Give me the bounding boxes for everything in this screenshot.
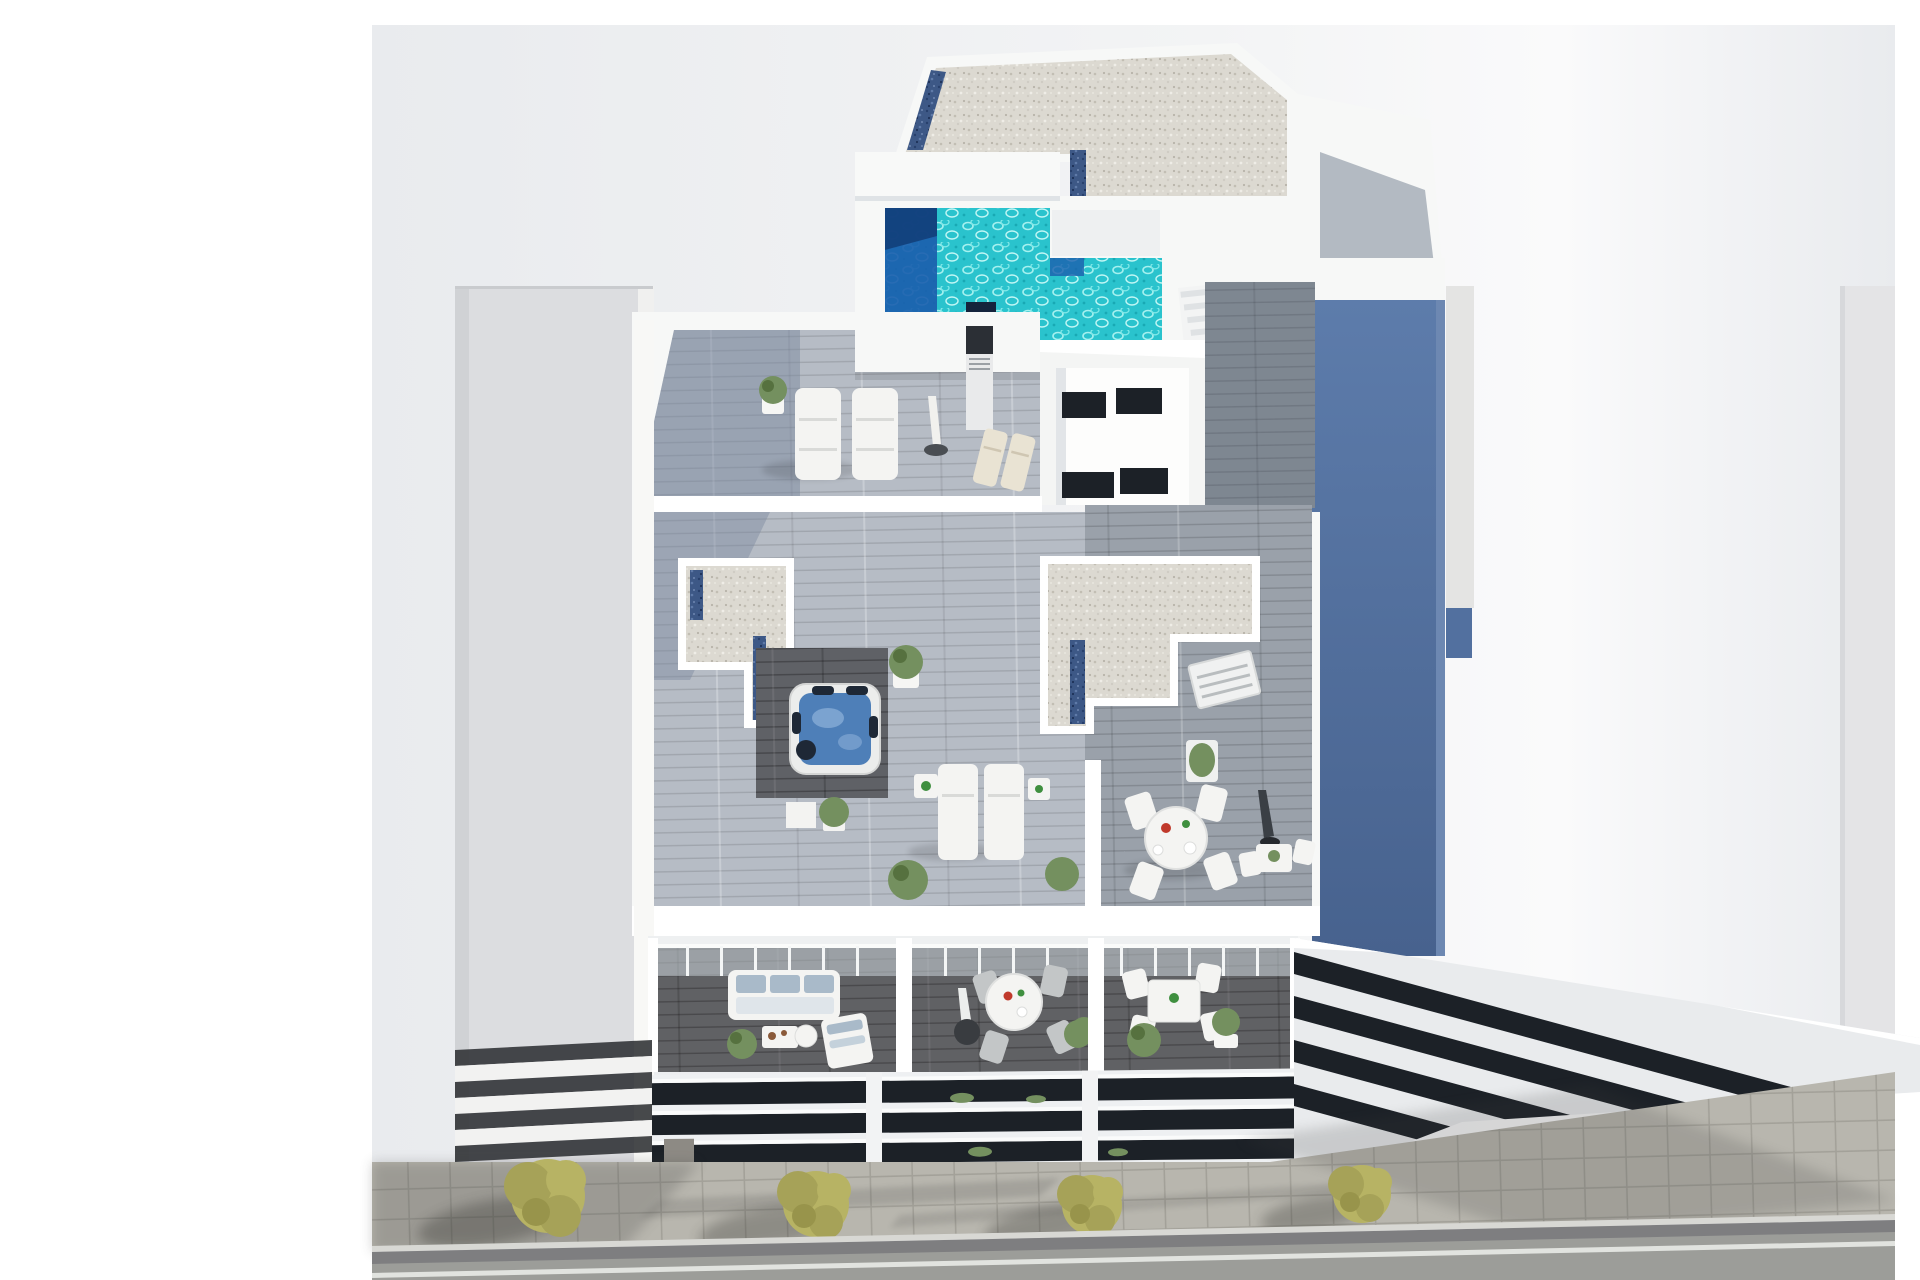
outdoor-shower-column — [966, 326, 993, 430]
sun-lounger — [852, 388, 898, 480]
tree-foliage — [817, 1173, 851, 1207]
table-item — [781, 1030, 787, 1036]
round-dining-table — [1145, 807, 1207, 869]
hot-tub-headrest — [792, 712, 801, 734]
balcony-divider-wall — [896, 938, 912, 1072]
sun-lounger — [938, 764, 978, 860]
plant-foliage-dark — [762, 380, 774, 392]
plant-foliage — [819, 797, 849, 827]
table-item — [768, 1032, 776, 1040]
back-roof-parapet — [1298, 258, 1445, 304]
lightwell-window — [1120, 468, 1168, 494]
tree-foliage — [546, 1160, 586, 1200]
neighbor-left-edge-dark — [455, 286, 469, 1162]
cushion-seam — [799, 418, 837, 421]
table-plate — [1184, 842, 1196, 854]
tree-foliage-dark — [1340, 1192, 1360, 1212]
potted-plant — [1212, 1008, 1240, 1048]
neighbor-right-wall-arm — [1446, 608, 1472, 658]
sofa-cushion — [804, 975, 834, 993]
plant-foliage — [727, 1029, 757, 1059]
back-roof-wedge — [1298, 94, 1445, 304]
upper-right-deck-shade — [1205, 282, 1315, 508]
lightwell-window — [1116, 388, 1162, 414]
hot-tub-area — [756, 648, 888, 798]
plant-foliage — [1127, 1023, 1161, 1057]
neighbor-right-wall-edge — [1436, 300, 1445, 956]
plant-foliage — [1045, 857, 1079, 891]
cushion-seam — [856, 448, 894, 451]
sofa-cushion — [736, 975, 766, 993]
lower-facade — [652, 1068, 1298, 1175]
hot-tub-cover-corner — [796, 740, 816, 760]
round-dining-table — [986, 974, 1042, 1030]
tray-table — [795, 1025, 817, 1047]
balustrade-rail — [652, 944, 1298, 948]
skylight-strip — [690, 570, 703, 620]
table-plate — [1017, 1007, 1027, 1017]
plant-foliage — [889, 645, 923, 679]
facade-mullion — [866, 1073, 882, 1173]
parapet-shadow-line — [855, 196, 1060, 201]
plant-foliage — [759, 376, 787, 404]
cushion-seam — [942, 794, 974, 797]
main-terrace-parapet — [632, 906, 1320, 936]
lightwell-window — [1062, 472, 1114, 498]
hot-tub-headrest — [869, 716, 878, 738]
table-plant — [1268, 850, 1280, 862]
skylight-strip — [1070, 640, 1085, 724]
parasol-base — [954, 1019, 980, 1045]
plant-foliage-dark — [893, 649, 907, 663]
table-item-green — [1182, 820, 1190, 828]
vent-slat — [969, 363, 990, 365]
far-right-face — [1840, 286, 1895, 1096]
vent-slat — [969, 358, 990, 360]
chair — [1238, 850, 1262, 877]
far-right-edge — [1840, 286, 1845, 1096]
roof-terrace-main — [632, 505, 1320, 936]
neighbor-right-lit-sliver — [1446, 286, 1474, 608]
plant-foliage — [1189, 743, 1215, 777]
hot-tub-ripple — [838, 734, 862, 750]
neighbor-right-shadow-wall — [1312, 300, 1445, 956]
cushion-seam — [856, 418, 894, 421]
table-item-red — [1004, 992, 1013, 1001]
tree-foliage — [1093, 1177, 1123, 1207]
plant-foliage-dark — [893, 865, 909, 881]
plant-foliage-dark — [730, 1032, 742, 1044]
table-item-green — [1018, 990, 1025, 997]
coffee-table — [762, 1026, 798, 1048]
plant-foliage — [1212, 1008, 1240, 1036]
neighbor-left-face — [455, 286, 653, 1162]
architectural-render: Aerial 3D architectural render of a new-… — [0, 0, 1920, 1280]
plant-foliage-dark — [1131, 1026, 1145, 1040]
table-plant — [1035, 785, 1043, 793]
balcony-level — [648, 936, 1300, 1072]
neighbor-left-roofline — [455, 286, 653, 289]
cushion-seam — [799, 448, 837, 451]
table-item-red — [1161, 823, 1171, 833]
sofa-cushion — [770, 975, 800, 993]
pool-peninsula — [1052, 210, 1160, 256]
parasol-base — [924, 444, 948, 456]
shower-head — [966, 326, 993, 354]
facade-mullion — [1082, 1071, 1098, 1171]
pool-deep-corner — [1050, 258, 1084, 276]
stair-lightwell — [1040, 340, 1205, 505]
tree-foliage-dark — [1070, 1204, 1090, 1224]
vent-slat — [969, 368, 990, 370]
hot-tub-headrest — [846, 686, 868, 695]
tree-foliage-dark — [522, 1198, 550, 1226]
tree-foliage — [1356, 1194, 1384, 1222]
cushion-seam — [988, 794, 1020, 797]
hot-tub-headrest — [812, 686, 834, 695]
plant-foliage — [888, 860, 928, 900]
table-plate — [1153, 845, 1163, 855]
planter-box — [786, 802, 816, 828]
render-canvas: Aerial 3D architectural render of a new-… — [0, 0, 1920, 1280]
lightwell-window — [1062, 392, 1106, 418]
neighbor-left-lower-louvers — [455, 1040, 652, 1162]
sun-lounger — [984, 764, 1024, 860]
sofa-seat — [736, 997, 834, 1014]
far-right-building — [1840, 286, 1895, 1096]
balcony-divider-wall — [1088, 938, 1104, 1072]
table-plant — [921, 781, 931, 791]
potted-plant — [889, 645, 923, 688]
tree-foliage — [1364, 1168, 1392, 1196]
hot-tub-ripple — [812, 708, 844, 728]
roof-terrace-upper — [632, 312, 1042, 517]
tall-planter — [1186, 740, 1218, 782]
upper-terrace-parapet — [636, 496, 1042, 514]
table-plant — [1169, 993, 1179, 1003]
pool-platform-cast-shadow — [855, 372, 1040, 380]
pool-back-parapet — [855, 152, 1060, 200]
potted-plant — [759, 376, 787, 414]
plant-pot — [1214, 1034, 1238, 1048]
sun-lounger — [795, 388, 841, 480]
neighbor-building-left — [455, 286, 654, 1162]
terrace-divider-wall — [1085, 760, 1101, 924]
tree-foliage-dark — [792, 1204, 816, 1228]
